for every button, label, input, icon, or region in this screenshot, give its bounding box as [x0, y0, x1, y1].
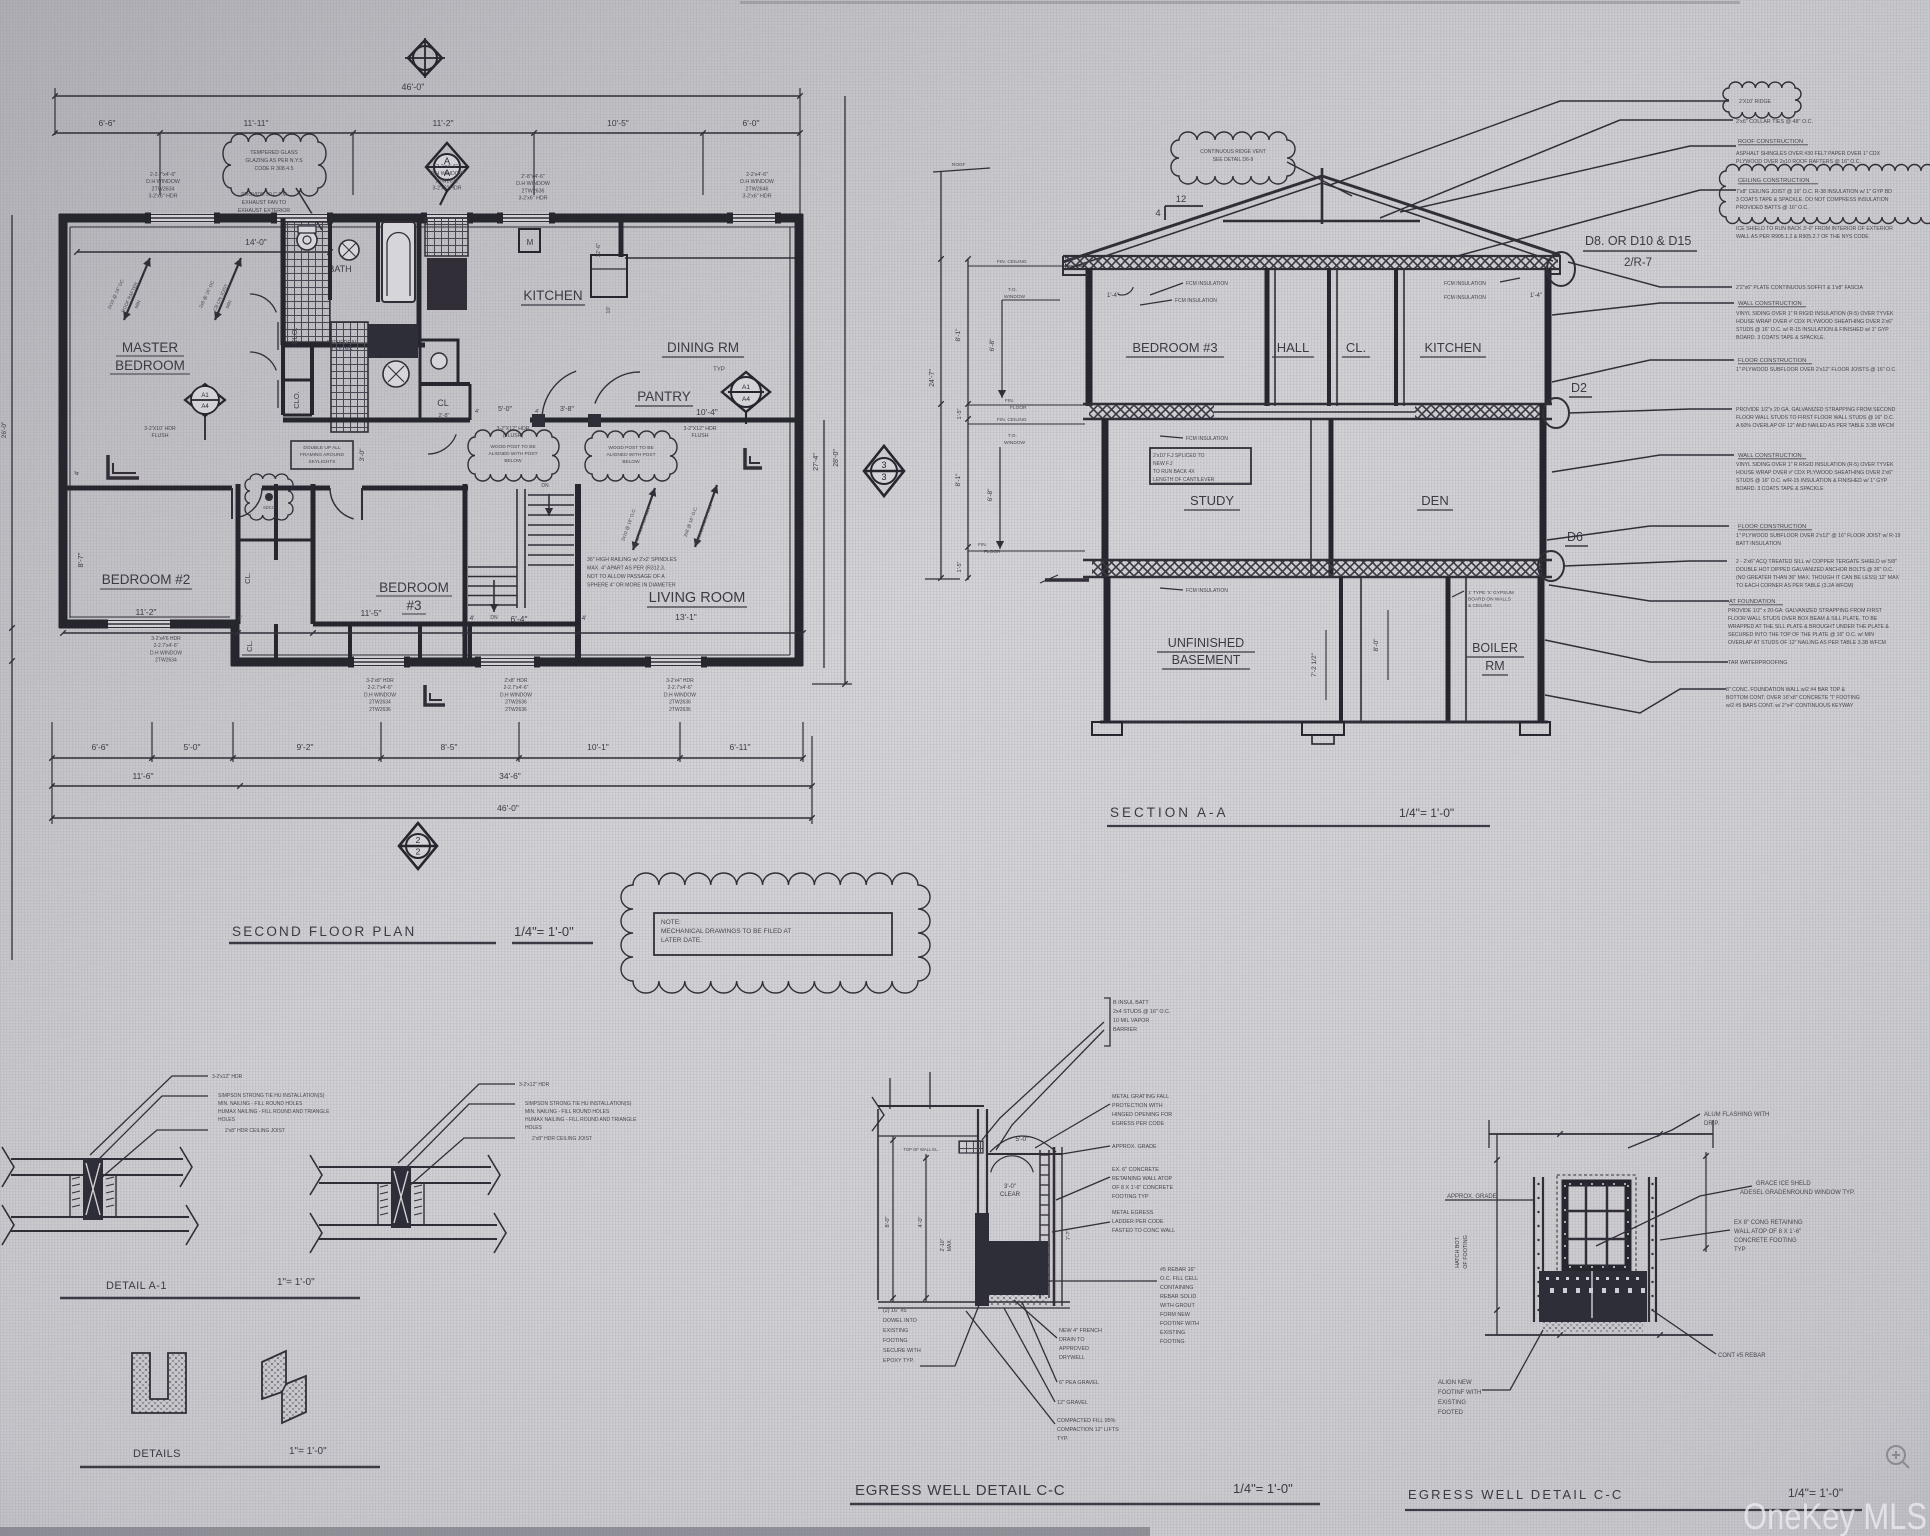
- svg-text:CL.: CL.: [243, 572, 252, 584]
- svg-text:2TW2636: 2TW2636: [669, 700, 691, 706]
- svg-text:HOLES: HOLES: [218, 1117, 236, 1123]
- svg-text:4: 4: [1155, 208, 1160, 219]
- svg-text:46'-0": 46'-0": [402, 82, 425, 92]
- svg-text:3-2'x4'6 HDR: 3-2'x4'6 HDR: [151, 636, 181, 642]
- svg-text:2: 2: [416, 847, 421, 857]
- svg-text:PROVIDED BATTS @ 16" O.C.: PROVIDED BATTS @ 16" O.C.: [1736, 205, 1809, 211]
- svg-text:6'-11": 6'-11": [729, 742, 750, 752]
- svg-text:D.H WINDOW: D.H WINDOW: [500, 692, 532, 698]
- svg-text:& CEILING: & CEILING: [1468, 603, 1492, 609]
- svg-text:3'-0": 3'-0": [1004, 1184, 1016, 1190]
- svg-text:FOOTINF WITH: FOOTINF WITH: [1160, 1321, 1199, 1327]
- svg-text:1'-4": 1'-4": [1107, 293, 1119, 299]
- svg-text:ALUM FLASHING WITH: ALUM FLASHING WITH: [1704, 1112, 1769, 1118]
- svg-text:WOOD POST TO BE: WOOD POST TO BE: [608, 445, 653, 451]
- svg-text:w/2 #5 BARS CONT. w/ 2"x4" CON: w/2 #5 BARS CONT. w/ 2"x4" CONTINUOUS KE…: [1726, 703, 1854, 709]
- svg-text:DN: DN: [490, 615, 498, 621]
- svg-text:22'-6": 22'-6": [596, 243, 602, 257]
- svg-text:HOUSE WRAP OVER #' CDX PLYWOOD: HOUSE WRAP OVER #' CDX PLYWOOD SHEATHING…: [1736, 319, 1893, 325]
- svg-text:EGRESS WELL DETAIL C-C: EGRESS WELL DETAIL C-C: [855, 1482, 1065, 1499]
- svg-text:D.H WINDOW: D.H WINDOW: [740, 179, 774, 185]
- svg-text:DETAIL A-1: DETAIL A-1: [106, 1280, 167, 1292]
- svg-text:KITCHEN: KITCHEN: [1424, 340, 1481, 355]
- svg-text:FCM INSULATION: FCM INSULATION: [1186, 588, 1228, 594]
- svg-text:OVERLAP AT STUDS OF 12" NAILIN: OVERLAP AT STUDS OF 12" NAILING AS PER T…: [1728, 640, 1886, 646]
- svg-text:HOLES: HOLES: [525, 1125, 543, 1131]
- svg-text:2'x8" HDR CEILING JOIST: 2'x8" HDR CEILING JOIST: [532, 1136, 592, 1142]
- svg-text:CL.: CL.: [245, 640, 254, 652]
- svg-text:13'-1": 13'-1": [675, 612, 697, 622]
- svg-text:1"= 1'-0": 1"= 1'-0": [289, 1446, 327, 1457]
- svg-text:2TW2646: 2TW2646: [746, 186, 769, 192]
- svg-text:12" GRAVEL: 12" GRAVEL: [1057, 1400, 1088, 1406]
- svg-text:2-2.7'x4'-6": 2-2.7'x4'-6": [668, 685, 693, 691]
- svg-text:MIN. NAILING - FILL ROUND HOLE: MIN. NAILING - FILL ROUND HOLES: [218, 1101, 303, 1107]
- svg-text:FASTED TO CONC WALL: FASTED TO CONC WALL: [1112, 1228, 1175, 1234]
- svg-text:DOUBLE UP ALL: DOUBLE UP ALL: [303, 445, 341, 451]
- svg-text:LADDER PER CODE: LADDER PER CODE: [1112, 1219, 1164, 1225]
- svg-text:TEMPERED GLASS: TEMPERED GLASS: [250, 150, 298, 156]
- svg-text:7'-?": 7'-?": [1066, 1230, 1072, 1240]
- svg-text:#3: #3: [406, 598, 421, 613]
- svg-text:3-2'x6" HDR: 3-2'x6" HDR: [742, 194, 771, 200]
- svg-text:CL: CL: [437, 398, 449, 408]
- svg-text:FLOOR WALL STUDS TO FIRST FLOO: FLOOR WALL STUDS TO FIRST FLOOR WALL STU…: [1736, 415, 1894, 421]
- svg-text:GLAZING AS PER N.Y.S: GLAZING AS PER N.Y.S: [245, 158, 303, 164]
- svg-text:2'-10": 2'-10": [940, 1238, 946, 1251]
- svg-text:CODE R 308.4.5: CODE R 308.4.5: [255, 166, 294, 172]
- svg-text:2TW2636: 2TW2636: [505, 707, 527, 713]
- svg-text:WALL CONSTRUCTION: WALL CONSTRUCTION: [1738, 453, 1802, 459]
- svg-text:2-2'x4'-6": 2-2'x4'-6": [436, 164, 458, 170]
- svg-text:SPHERE 4" OR MORE IN DIAMETER: SPHERE 4" OR MORE IN DIAMETER: [587, 583, 676, 589]
- svg-text:SECURED INTO THE TOP OF THE PL: SECURED INTO THE TOP OF THE PLATE @ 16" …: [1728, 632, 1874, 638]
- svg-text:4': 4': [238, 615, 243, 622]
- svg-text:SIMPSON STRONG TIE HU INSTALLA: SIMPSON STRONG TIE HU INSTALLATION(S): [218, 1093, 325, 1099]
- svg-text:DETAILS: DETAILS: [133, 1448, 181, 1460]
- svg-text:COMPACTED FILL 95%: COMPACTED FILL 95%: [1057, 1418, 1116, 1424]
- svg-text:FIN. CEILING: FIN. CEILING: [997, 417, 1027, 423]
- svg-text:CEILING CONSTRUCTION: CEILING CONSTRUCTION: [1738, 178, 1810, 184]
- svg-text:ROOF CONSTRUCTION: ROOF CONSTRUCTION: [1738, 139, 1803, 145]
- svg-text:EXISTING: EXISTING: [1160, 1330, 1185, 1336]
- svg-text:LIVING ROOM: LIVING ROOM: [649, 590, 746, 606]
- svg-text:2TW2636: 2TW2636: [522, 188, 545, 194]
- svg-text:HALL: HALL: [1277, 340, 1310, 355]
- svg-text:4': 4': [475, 409, 479, 415]
- svg-text:2'x10' F.J SPLICED TO: 2'x10' F.J SPLICED TO: [1153, 453, 1205, 459]
- svg-text:A4: A4: [201, 404, 209, 410]
- svg-text:2-2.7'x4'-6": 2-2.7'x4'-6": [368, 685, 393, 691]
- svg-text:ICE SHIELD TO RUN BACK 3'-0" F: ICE SHIELD TO RUN BACK 3'-0" FROM INTERI…: [1736, 226, 1893, 232]
- svg-text:SDCO: SDCO: [263, 505, 276, 510]
- svg-text:1"= 1'-0": 1"= 1'-0": [277, 1277, 315, 1288]
- svg-text:AT FOUNDATION: AT FOUNDATION: [1729, 599, 1775, 605]
- svg-text:EXISTING: EXISTING: [883, 1328, 908, 1334]
- svg-text:FLOOR CONSTRUCTION: FLOOR CONSTRUCTION: [1738, 358, 1806, 364]
- svg-text:FLOOR WALL STUDS OVER BOX BEAM: FLOOR WALL STUDS OVER BOX BEAM & SILL PL…: [1728, 616, 1878, 622]
- svg-text:MAX.: MAX.: [947, 1239, 953, 1251]
- svg-text:6'-6": 6'-6": [92, 742, 109, 752]
- svg-text:EGRESS PER CODE: EGRESS PER CODE: [1112, 1121, 1165, 1127]
- svg-text:14'-0": 14'-0": [245, 237, 267, 247]
- svg-text:DN: DN: [541, 483, 549, 489]
- svg-text:7'-2 1/2": 7'-2 1/2": [1311, 652, 1318, 676]
- svg-text:3: 3: [881, 460, 886, 470]
- svg-text:EXHAUST FAN TO: EXHAUST FAN TO: [242, 200, 286, 206]
- svg-text:1/4"= 1'-0": 1/4"= 1'-0": [1399, 806, 1454, 820]
- svg-text:FLOOR: FLOOR: [984, 549, 1001, 555]
- svg-text:TOP OF WALL EL.: TOP OF WALL EL.: [903, 1147, 938, 1152]
- svg-text:WINDOW: WINDOW: [1004, 440, 1026, 446]
- svg-text:D.H WINDOW: D.H WINDOW: [516, 181, 550, 187]
- svg-text:BASEMENT: BASEMENT: [1172, 653, 1241, 667]
- svg-text:CONCRETE FOOTING: CONCRETE FOOTING: [1734, 1238, 1797, 1244]
- svg-text:2-2.7'x4'-6": 2-2.7'x4'-6": [150, 172, 176, 178]
- svg-text:LATER DATE.: LATER DATE.: [661, 937, 702, 944]
- svg-text:A1: A1: [742, 384, 750, 391]
- svg-text:BOILER: BOILER: [1472, 641, 1518, 655]
- svg-text:26'-0": 26'-0": [1, 421, 8, 438]
- svg-text:RM: RM: [1485, 659, 1504, 673]
- svg-text:SECTION A-A: SECTION A-A: [1110, 805, 1229, 820]
- svg-text:A 60% OVERLAP OF 12" AND NAILE: A 60% OVERLAP OF 12" AND NAILED AS PER T…: [1736, 423, 1894, 429]
- svg-text:BARRIER: BARRIER: [1113, 1027, 1137, 1033]
- svg-text:FCM INSULATION: FCM INSULATION: [1175, 298, 1217, 304]
- svg-text:3-2'x6" HDR: 3-2'x6" HDR: [518, 196, 547, 202]
- svg-text:FCM INSULATION: FCM INSULATION: [1444, 281, 1486, 287]
- svg-text:STUDS @ 16" O.C. w/R-15 INSULA: STUDS @ 16" O.C. w/R-15 INSULATION & FIN…: [1736, 478, 1888, 484]
- svg-text:T.O.: T.O.: [1008, 433, 1017, 439]
- svg-text:WITH GROUT: WITH GROUT: [1160, 1303, 1195, 1309]
- svg-text:2TW2632: 2TW2632: [436, 178, 459, 184]
- svg-text:WALL ATOP OF 8 X 1'-6": WALL ATOP OF 8 X 1'-6": [1734, 1229, 1801, 1235]
- svg-text:TAR WATERPROOFING: TAR WATERPROOFING: [1728, 660, 1788, 666]
- svg-text:REBAR SOLID: REBAR SOLID: [1160, 1294, 1196, 1300]
- svg-text:APPROX. GRADE: APPROX. GRADE: [1112, 1144, 1157, 1150]
- svg-text:FLOOR CONSTRUCTION: FLOOR CONSTRUCTION: [1738, 524, 1806, 530]
- svg-text:OneKey MLS: OneKey MLS: [1743, 1496, 1927, 1536]
- svg-text:ASPHALT SHINGLES OVER #30 FELT: ASPHALT SHINGLES OVER #30 FELT PAPER OVE…: [1736, 151, 1881, 157]
- svg-text:D8. OR D10 & D15: D8. OR D10 & D15: [1585, 234, 1691, 248]
- svg-text:2'x6" COLLAR TIES @ 48" O.C.: 2'x6" COLLAR TIES @ 48" O.C.: [1736, 119, 1813, 125]
- svg-text:3'-8": 3'-8": [560, 406, 574, 413]
- svg-text:VINYL SIDING OVER 1" R RIGID I: VINYL SIDING OVER 1" R RIGID INSULATION …: [1736, 462, 1894, 468]
- svg-text:2TW2636: 2TW2636: [369, 707, 391, 713]
- svg-text:8'-0": 8'-0": [885, 1216, 891, 1227]
- svg-text:11'-5": 11'-5": [360, 608, 381, 618]
- svg-text:11'-2": 11'-2": [432, 118, 453, 128]
- svg-text:TYP: TYP: [713, 367, 725, 373]
- svg-text:(2) 16" #5: (2) 16" #5: [883, 1308, 907, 1314]
- svg-text:APPROX. GRADE: APPROX. GRADE: [1447, 1194, 1497, 1200]
- svg-text:8'-0": 8'-0": [1373, 638, 1380, 652]
- svg-text:HINGED OPENING FOR: HINGED OPENING FOR: [1112, 1112, 1172, 1118]
- svg-text:7'x8" CEILING JOIST @ 16" O.C.: 7'x8" CEILING JOIST @ 16" O.C. R-38 INSU…: [1736, 189, 1892, 195]
- svg-text:10 MIL VAPOR: 10 MIL VAPOR: [1113, 1018, 1149, 1024]
- svg-text:3-2'x6" HDR: 3-2'x6" HDR: [148, 194, 177, 200]
- svg-text:36" HIGH RAILING w/ 2'x2' SPIN: 36" HIGH RAILING w/ 2'x2' SPINDLES: [587, 557, 677, 563]
- svg-text:FLUSH: FLUSH: [691, 433, 708, 439]
- svg-text:NOTE:: NOTE:: [661, 919, 681, 926]
- svg-text:M: M: [527, 238, 534, 247]
- svg-text:2'-8"x4'-6": 2'-8"x4'-6": [521, 174, 545, 180]
- svg-text:SIMPSON STRONG TIE HU INSTALLA: SIMPSON STRONG TIE HU INSTALLATION(S): [525, 1101, 632, 1107]
- svg-text:FORM NEW: FORM NEW: [1160, 1312, 1191, 1318]
- svg-text:OF 8 X 1'-6" CONCRETE: OF 8 X 1'-6" CONCRETE: [1112, 1185, 1173, 1191]
- svg-text:MAX. 4" APART AS PER (R312.3,: MAX. 4" APART AS PER (R312.3,: [587, 566, 665, 572]
- svg-text:2-2.7'x4'-6": 2-2.7'x4'-6": [154, 643, 179, 649]
- svg-text:WINDOW: WINDOW: [1004, 294, 1026, 300]
- svg-text:D.H WINDOW: D.H WINDOW: [150, 650, 182, 656]
- svg-text:PROTECTION WITH: PROTECTION WITH: [1112, 1103, 1163, 1109]
- svg-text:2x4 STUDS @ 16" O.C.: 2x4 STUDS @ 16" O.C.: [1113, 1009, 1170, 1015]
- svg-text:CONTINUOUS RIDGE VENT: CONTINUOUS RIDGE VENT: [1200, 149, 1266, 155]
- svg-text:ADESEL GRADENROUND WINDOW TYP.: ADESEL GRADENROUND WINDOW TYP.: [1740, 1190, 1855, 1196]
- svg-text:TYP: TYP: [1734, 1247, 1746, 1253]
- svg-text:COMPACTION 12" LIFTS: COMPACTION 12" LIFTS: [1057, 1427, 1119, 1433]
- svg-text:ROOF: ROOF: [952, 162, 965, 167]
- svg-text:FOOTING: FOOTING: [1160, 1339, 1185, 1345]
- svg-text:4'-0": 4'-0": [918, 1216, 924, 1227]
- svg-text:24'-7": 24'-7": [929, 369, 936, 387]
- svg-text:FOOTING: FOOTING: [883, 1338, 908, 1344]
- svg-text:EPOXY TYP.: EPOXY TYP.: [883, 1358, 914, 1364]
- svg-text:12: 12: [1176, 194, 1187, 205]
- svg-text:PANTRY: PANTRY: [637, 389, 691, 404]
- svg-text:11'-6": 11'-6": [132, 771, 153, 781]
- svg-text:T.O.: T.O.: [1008, 287, 1017, 293]
- svg-text:DINING RM: DINING RM: [667, 340, 739, 355]
- svg-text:VINYL SIDING OVER 1" R RIGID I: VINYL SIDING OVER 1" R RIGID INSULATION …: [1736, 311, 1894, 317]
- svg-text:WALL CONSTRUCTION: WALL CONSTRUCTION: [1738, 301, 1802, 307]
- svg-text:CONT #5 REBAR: CONT #5 REBAR: [1718, 1353, 1766, 1359]
- svg-text:9'-2": 9'-2": [297, 742, 314, 752]
- svg-text:3: 3: [881, 472, 886, 482]
- svg-text:BOTTOM CONT. OVER 16"x8" CONCR: BOTTOM CONT. OVER 16"x8" CONCRETE 'T' FO…: [1726, 695, 1860, 701]
- svg-text:DEN: DEN: [1421, 493, 1448, 508]
- svg-text:MASTER: MASTER: [122, 340, 179, 355]
- svg-text:2/R-7: 2/R-7: [1624, 257, 1652, 269]
- svg-text:NOT TO ALLOW PASSAGE OF A: NOT TO ALLOW PASSAGE OF A: [587, 574, 665, 580]
- svg-text:10'-1": 10'-1": [587, 742, 609, 752]
- svg-text:HUMAX NAILING - FILL ROUND AND: HUMAX NAILING - FILL ROUND AND TRIANGLE: [525, 1117, 637, 1123]
- svg-text:1'-4": 1'-4": [1530, 293, 1542, 299]
- svg-text:34'-6": 34'-6": [499, 771, 521, 781]
- svg-text:O.C. FILL CELL: O.C. FILL CELL: [1160, 1276, 1198, 1282]
- svg-text:CONTAINING: CONTAINING: [1160, 1285, 1193, 1291]
- svg-text:FRAMING AROUND: FRAMING AROUND: [300, 452, 345, 458]
- svg-text:3-2'x4" HDR: 3-2'x4" HDR: [666, 678, 694, 684]
- svg-text:EX 8" CONG RETAINING: EX 8" CONG RETAINING: [1734, 1220, 1803, 1226]
- svg-text:APPROVED: APPROVED: [1059, 1346, 1089, 1352]
- svg-text:8" CONC. FOUNDATION WALL w/2 #: 8" CONC. FOUNDATION WALL w/2 #4 BAR TOP …: [1726, 687, 1846, 693]
- svg-text:1'-5": 1'-5": [957, 561, 963, 572]
- svg-text:5'-0": 5'-0": [184, 742, 201, 752]
- svg-text:BELOW: BELOW: [504, 458, 522, 464]
- svg-text:6" PEA GRAVEL: 6" PEA GRAVEL: [1059, 1380, 1099, 1386]
- svg-text:10'-4": 10'-4": [696, 407, 718, 417]
- svg-text:ALIGNED WITH POST: ALIGNED WITH POST: [606, 452, 655, 458]
- svg-text:FCM INSULATION: FCM INSULATION: [1186, 281, 1228, 287]
- svg-text:UNFINISHED: UNFINISHED: [1168, 636, 1244, 650]
- svg-text:2TW2636: 2TW2636: [505, 700, 527, 706]
- svg-text:BEDROOM #2: BEDROOM #2: [102, 572, 191, 587]
- svg-text:NEW F.J: NEW F.J: [1153, 461, 1173, 467]
- svg-text:27'-4": 27'-4": [813, 453, 820, 471]
- svg-text:BATT INSULATION: BATT INSULATION: [1736, 541, 1781, 547]
- svg-text:2: 2: [416, 835, 421, 845]
- svg-text:HUMAX NAILING - FILL ROUND AND: HUMAX NAILING - FILL ROUND AND TRIANGLE: [218, 1109, 330, 1115]
- svg-text:10': 10': [606, 306, 612, 313]
- svg-text:1" PLYWOOD SUBFLOOR OVER 2'x12: 1" PLYWOOD SUBFLOOR OVER 2'x12" FLOOR JO…: [1736, 367, 1897, 373]
- svg-text:BEDROOM #3: BEDROOM #3: [1132, 340, 1217, 355]
- svg-text:SECOND FLOOR PLAN: SECOND FLOOR PLAN: [232, 924, 416, 939]
- svg-text:FOOTINF WITH: FOOTINF WITH: [1438, 1390, 1481, 1396]
- svg-text:FLOOR: FLOOR: [1010, 405, 1027, 411]
- svg-text:ALIGNED WITH POST: ALIGNED WITH POST: [488, 451, 537, 457]
- svg-text:STUDS @ 16" O.C. w/ R-15 INSUL: STUDS @ 16" O.C. w/ R-15 INSULATION & FI…: [1736, 327, 1889, 333]
- svg-text:LENGTH OF CANTILEVER: LENGTH OF CANTILEVER: [1153, 477, 1215, 483]
- svg-text:2TW2634: 2TW2634: [152, 186, 175, 192]
- svg-text:FOOTING TYP: FOOTING TYP: [1112, 1194, 1149, 1200]
- svg-text:2TW2634: 2TW2634: [155, 658, 177, 664]
- svg-text:5'-0": 5'-0": [498, 406, 512, 413]
- svg-text:2 - 2'x6" ACQ TREATED SILL w/: 2 - 2'x6" ACQ TREATED SILL w/ COPPER TER…: [1736, 559, 1897, 565]
- svg-text:4': 4': [75, 471, 81, 475]
- svg-text:3-2'x12" HDR: 3-2'x12" HDR: [212, 1074, 243, 1080]
- svg-text:3'-0": 3'-0": [359, 448, 366, 462]
- svg-text:D.H WINDOW: D.H WINDOW: [364, 692, 396, 698]
- svg-text:PROVIDE 1/2" x 20-GA. GALVANIZ: PROVIDE 1/2" x 20-GA. GALVANIZED STRAPPI…: [1728, 608, 1883, 614]
- svg-text:8'-7": 8'-7": [76, 552, 85, 567]
- svg-text:PROVIDE 50 C.F.M: PROVIDE 50 C.F.M: [241, 192, 287, 198]
- svg-text:FIN.: FIN.: [978, 542, 987, 548]
- svg-text:2'2"x6" PLATE CONTINUOUS SOFFI: 2'2"x6" PLATE CONTINUOUS SOFFIT & 1'x8" …: [1736, 285, 1863, 291]
- svg-text:1' TYPE 'X' GYPSUM: 1' TYPE 'X' GYPSUM: [1468, 590, 1514, 596]
- svg-text:4': 4': [535, 409, 539, 415]
- svg-text:8'-5": 8'-5": [441, 742, 458, 752]
- svg-text:FIN. CEILING: FIN. CEILING: [997, 259, 1027, 265]
- svg-text:ALIGN NEW: ALIGN NEW: [1438, 1380, 1472, 1386]
- svg-text:MIN. NAILING - FILL ROUND HOLE: MIN. NAILING - FILL ROUND HOLES: [525, 1109, 610, 1115]
- svg-text:10'-5": 10'-5": [607, 118, 629, 128]
- svg-text:OF FOOTING: OF FOOTING: [1463, 1235, 1469, 1269]
- svg-text:4': 4': [582, 615, 587, 622]
- svg-text:CLO.: CLO.: [290, 327, 299, 345]
- svg-text:1" PLYWOOD SUBFLOOR OVER 2'x12: 1" PLYWOOD SUBFLOOR OVER 2'x12" @ 16" FL…: [1736, 533, 1900, 539]
- svg-text:RETAINING WALL ATOP: RETAINING WALL ATOP: [1112, 1176, 1173, 1182]
- svg-text:FCM INSULATION: FCM INSULATION: [1186, 436, 1228, 442]
- svg-text:FIN.: FIN.: [1005, 398, 1014, 404]
- svg-text:FLUSH: FLUSH: [151, 433, 168, 439]
- svg-text:2-2'x4'-6": 2-2'x4'-6": [746, 172, 768, 178]
- svg-text:WOOD POST TO BE: WOOD POST TO BE: [490, 444, 535, 450]
- svg-text:CLO.: CLO.: [292, 391, 301, 409]
- svg-text:MECHANICAL DRAWINGS TO BE FILE: MECHANICAL DRAWINGS TO BE FILED AT: [661, 928, 791, 935]
- svg-text:1/4"= 1'-0": 1/4"= 1'-0": [1233, 1481, 1293, 1496]
- svg-text:CL.: CL.: [1346, 340, 1366, 355]
- svg-text:CLEAR: CLEAR: [1000, 1192, 1021, 1198]
- svg-text:3-2'x12" HDR: 3-2'x12" HDR: [519, 1082, 550, 1088]
- svg-text:SEE DETAIL D6-9: SEE DETAIL D6-9: [1213, 157, 1254, 163]
- svg-text:WALL AS PER R905.1.2 & R905.2.: WALL AS PER R905.1.2 & R905.2.7 OF THE N…: [1736, 234, 1869, 240]
- svg-text:SECURE WITH: SECURE WITH: [883, 1348, 921, 1354]
- svg-text:SKYLIGHTS: SKYLIGHTS: [309, 459, 336, 465]
- svg-text:EXHAUST EXTERIOR: EXHAUST EXTERIOR: [238, 208, 291, 214]
- svg-text:HOUSE WRAP OVER #' CDX PLYWOOD: HOUSE WRAP OVER #' CDX PLYWOOD SHEATHING…: [1736, 470, 1893, 476]
- svg-text:EXISTING: EXISTING: [1438, 1400, 1466, 1406]
- svg-text:11'-11": 11'-11": [243, 118, 268, 128]
- svg-text:PROVIDE 1/2"x 20 GA. GALVANIZE: PROVIDE 1/2"x 20 GA. GALVANIZED STRAPPIN…: [1736, 407, 1896, 413]
- svg-text:D.H WINDOW: D.H WINDOW: [430, 171, 464, 177]
- svg-text:3 COATS TAPE & SPACKLE. DO NOT: 3 COATS TAPE & SPACKLE. DO NOT COMPRESS …: [1736, 197, 1889, 203]
- svg-text:FOOTED: FOOTED: [1438, 1410, 1464, 1416]
- svg-text:TO EACH CORNER AS PER TABLE (3: TO EACH CORNER AS PER TABLE (3.2A WFCM): [1736, 583, 1854, 589]
- svg-text:EX. 6" CONCRETE: EX. 6" CONCRETE: [1112, 1167, 1159, 1173]
- svg-text:2TW2634: 2TW2634: [369, 700, 391, 706]
- svg-text:BOARD ON WALLS: BOARD ON WALLS: [1468, 597, 1511, 603]
- svg-text:GRACE ICE SHELD: GRACE ICE SHELD: [1756, 1181, 1811, 1187]
- svg-text:TYP.: TYP.: [1057, 1436, 1068, 1442]
- svg-text:6'-6": 6'-6": [99, 118, 116, 128]
- svg-text:2-2.7'x4'-6": 2-2.7'x4'-6": [504, 685, 529, 691]
- svg-text:(NO GREATER THAN 36" MAX. THOU: (NO GREATER THAN 36" MAX. THOUGH IT CAN …: [1736, 575, 1900, 581]
- svg-text:6'-0": 6'-0": [743, 118, 760, 128]
- svg-text:46'-0": 46'-0": [497, 803, 519, 813]
- svg-text:DRYWELL: DRYWELL: [1059, 1355, 1085, 1361]
- svg-text:A1: A1: [201, 393, 209, 399]
- svg-text:D2: D2: [1571, 381, 1587, 395]
- svg-text:#5 REBAR 16": #5 REBAR 16": [1160, 1267, 1196, 1273]
- svg-text:2TW2636: 2TW2636: [669, 707, 691, 713]
- svg-text:8'-1": 8'-1": [955, 473, 962, 487]
- svg-text:11'-2": 11'-2": [135, 607, 156, 617]
- svg-text:3-2'X10' HDR: 3-2'X10' HDR: [144, 426, 176, 432]
- svg-text:3-2'x6" HDR: 3-2'x6" HDR: [432, 186, 461, 192]
- svg-text:6'-8": 6'-8": [989, 338, 996, 352]
- svg-text:D.H WINDOW: D.H WINDOW: [664, 692, 696, 698]
- svg-text:B INSUL BATT: B INSUL BATT: [1113, 1000, 1149, 1006]
- svg-text:1'-5": 1'-5": [957, 408, 963, 419]
- svg-text:FCM INSULATION: FCM INSULATION: [1444, 295, 1486, 301]
- svg-text:HATCH BOT.: HATCH BOT.: [1455, 1236, 1461, 1268]
- svg-text:KITCHEN: KITCHEN: [523, 288, 582, 303]
- svg-text:TO RUN BACK 4X: TO RUN BACK 4X: [1153, 469, 1195, 475]
- svg-text:BEDROOM: BEDROOM: [379, 580, 449, 595]
- svg-text:METAL EGRESS: METAL EGRESS: [1112, 1210, 1154, 1216]
- svg-text:WRAPPED AT THE SILL PLATE & BR: WRAPPED AT THE SILL PLATE & BROUGHT UNDE…: [1728, 624, 1889, 630]
- svg-text:2'x8" HDR: 2'x8" HDR: [504, 678, 527, 684]
- svg-text:METAL GRATING FALL: METAL GRATING FALL: [1112, 1094, 1169, 1100]
- svg-text:STUDY: STUDY: [1190, 493, 1234, 508]
- svg-text:D.H WINDOW: D.H WINDOW: [146, 179, 180, 185]
- svg-text:DOUBLE HOT DIPPED GALVANIZED A: DOUBLE HOT DIPPED GALVANIZED ANCHOR BOLT…: [1736, 567, 1893, 573]
- svg-text:NEW 4" FRENCH: NEW 4" FRENCH: [1059, 1328, 1102, 1334]
- svg-text:DOWEL INTO: DOWEL INTO: [883, 1318, 917, 1324]
- svg-text:6'-8": 6'-8": [987, 488, 994, 502]
- svg-text:A4: A4: [742, 396, 750, 403]
- svg-text:4': 4': [470, 615, 475, 622]
- svg-text:BOARD. 3 COATS TAPE & SPACKLE.: BOARD. 3 COATS TAPE & SPACKLE.: [1736, 335, 1825, 341]
- svg-text:1/4"= 1'-0": 1/4"= 1'-0": [514, 924, 574, 939]
- svg-text:3-2'x8" HDR: 3-2'x8" HDR: [366, 678, 394, 684]
- svg-text:DRIP.: DRIP.: [1704, 1121, 1720, 1127]
- svg-text:EGRESS WELL DETAIL C-C: EGRESS WELL DETAIL C-C: [1408, 1487, 1624, 1502]
- svg-text:3-2"X12" HDR: 3-2"X12" HDR: [683, 426, 716, 432]
- svg-text:BOARD. 3 COATS TAPE & SPACKLE: BOARD. 3 COATS TAPE & SPACKLE: [1736, 486, 1824, 492]
- svg-text:6'-4": 6'-4": [511, 614, 528, 624]
